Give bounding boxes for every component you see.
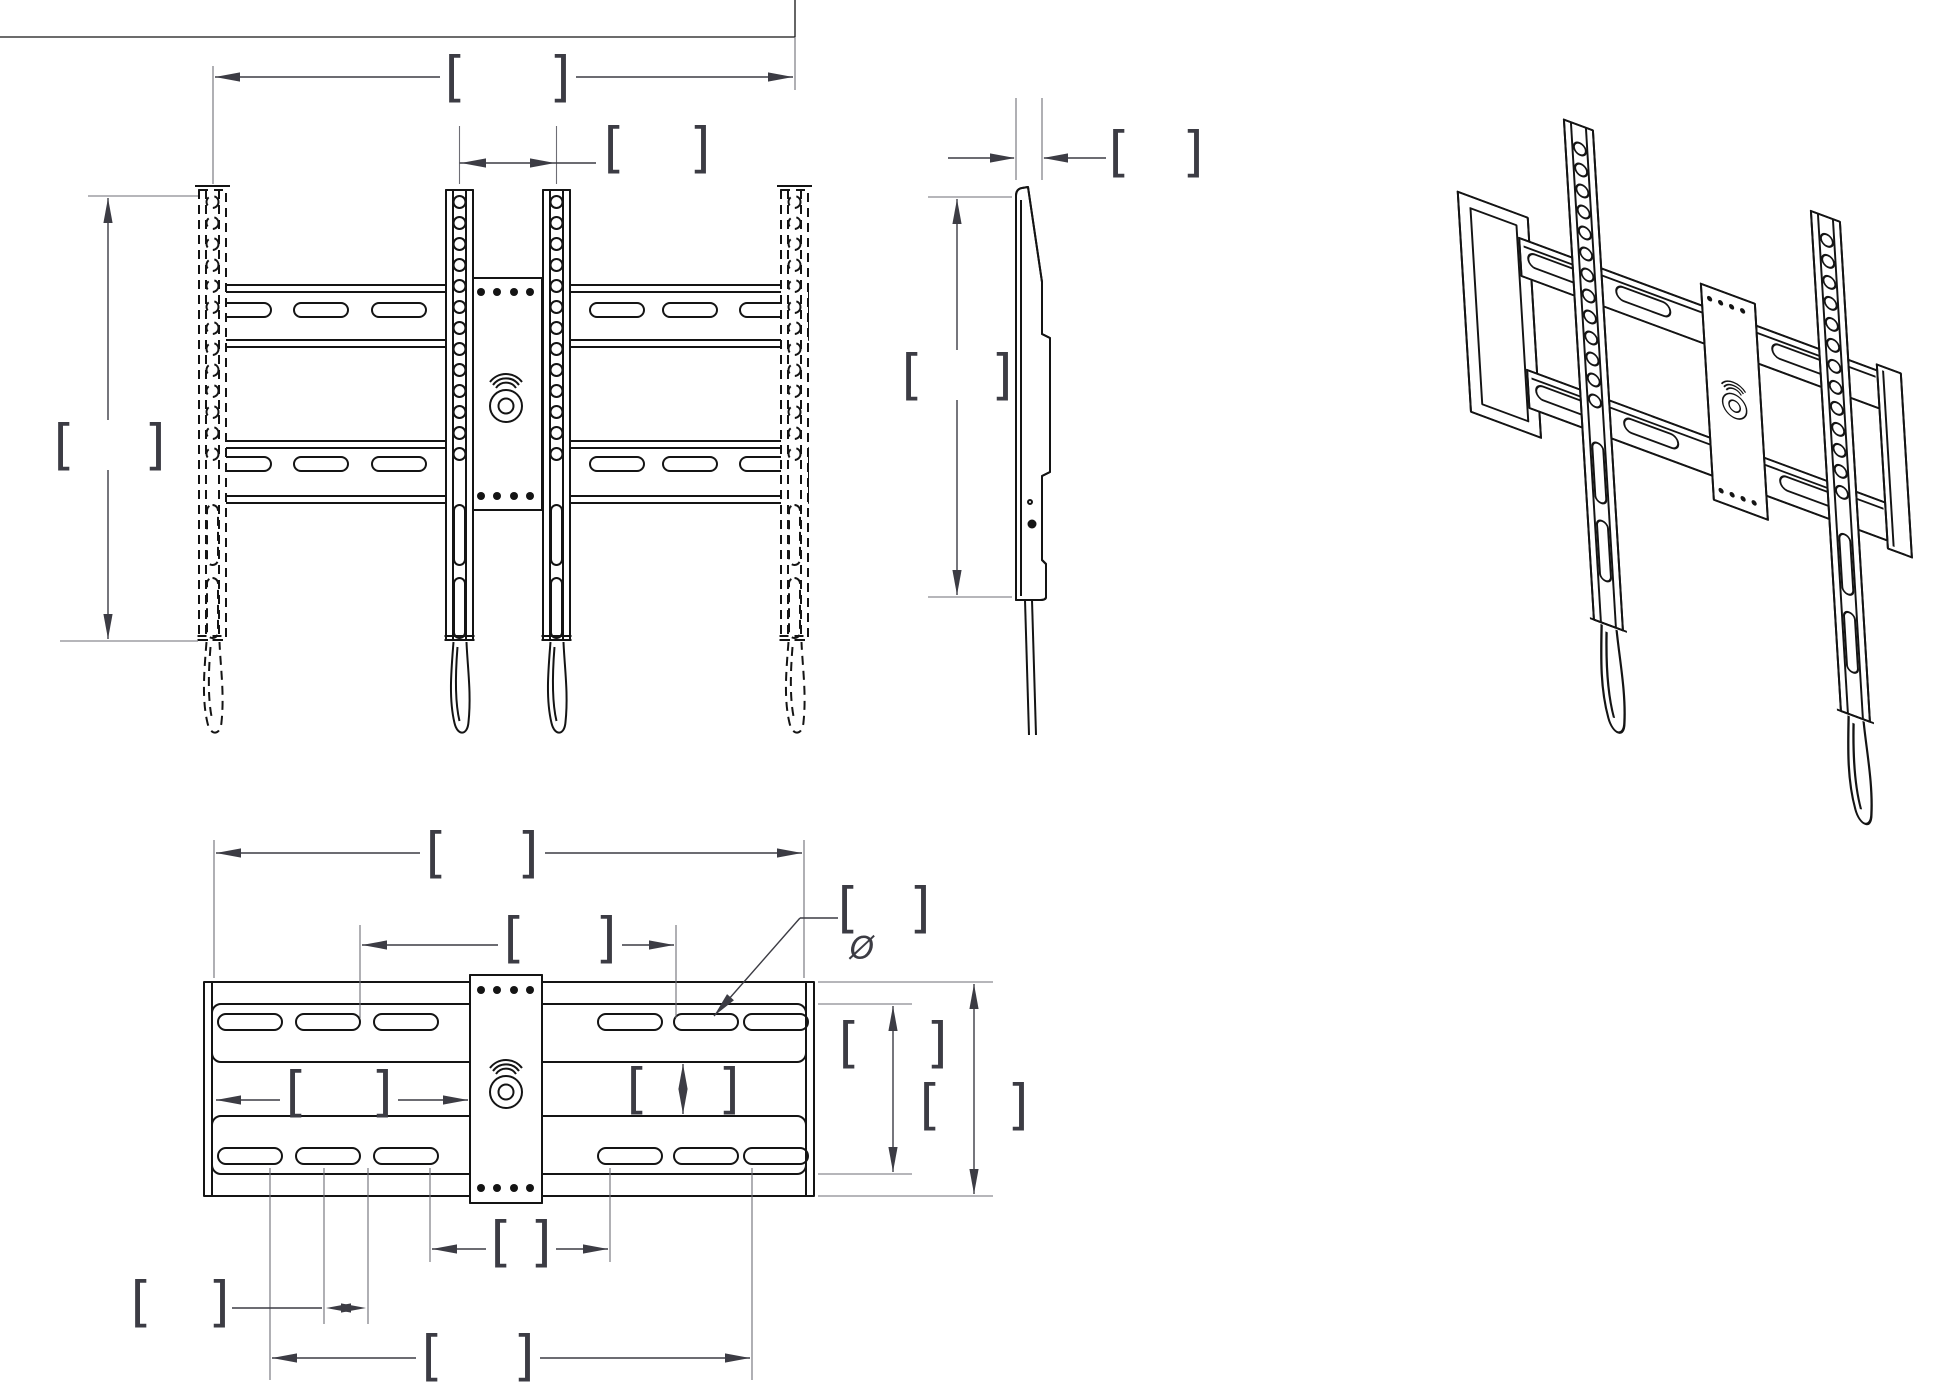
svg-text:]: ]: [371, 1061, 392, 1124]
dim-bottom-mid-slot-spacing: [ ]: [432, 1211, 608, 1274]
front-rail-1-phantom: [195, 186, 230, 733]
svg-text:[: [: [838, 1012, 859, 1075]
front-view: [ ] [ ] [ ]: [53, 37, 812, 733]
sheet-border: [0, 0, 795, 37]
dim-side-height: [ ]: [901, 197, 1012, 597]
cad-canvas: [ ] [ ] [ ]: [0, 0, 1933, 1382]
svg-text:]: ]: [1182, 121, 1203, 184]
svg-text:]: ]: [513, 1325, 534, 1382]
svg-text:[: [: [503, 907, 524, 970]
svg-text:[: [: [603, 117, 624, 180]
side-profile: [1016, 187, 1050, 735]
svg-text:]: ]: [718, 1058, 739, 1121]
svg-text:]: ]: [549, 46, 570, 109]
svg-text:[: [: [626, 1058, 647, 1121]
dim-bottom-slot-pitch: [ ]: [130, 1271, 366, 1334]
dim-front-rail-height: [ ]: [53, 196, 198, 641]
svg-text:[: [: [919, 1074, 940, 1137]
plan-center-plate: [470, 975, 542, 1203]
side-view: [ ] [ ]: [901, 98, 1203, 735]
svg-text:[: [: [901, 344, 922, 407]
dim-bottom-slot-diameter-callout: [ ] Ø: [711, 877, 931, 1020]
svg-text:]: ]: [208, 1271, 229, 1334]
dim-side-thickness: [ ]: [948, 98, 1204, 184]
diameter-symbol: Ø: [848, 930, 876, 966]
svg-text:[: [: [490, 1211, 511, 1274]
dim-front-center-rail-spacing: [ ]: [460, 117, 711, 185]
dim-bottom-lower-span: [ ]: [272, 1325, 750, 1382]
svg-text:]: ]: [530, 1211, 551, 1274]
svg-text:[: [: [285, 1061, 306, 1124]
bottom-plan-view: [ ] [ ] [ ]: [130, 822, 1028, 1382]
svg-text:]: ]: [909, 877, 930, 940]
svg-text:]: ]: [926, 1012, 947, 1075]
svg-text:[: [: [130, 1271, 151, 1334]
front-center-plate: [470, 278, 542, 510]
drawing-sheet: [ ] [ ] [ ]: [0, 0, 1933, 1382]
front-rail-2: [445, 190, 475, 733]
dim-bottom-left-cavity-width: [ ]: [216, 1061, 468, 1124]
isometric-view: [1451, 78, 1929, 848]
svg-text:]: ]: [517, 822, 538, 885]
svg-text:]: ]: [991, 344, 1012, 407]
svg-text:[: [: [53, 414, 74, 477]
svg-text:[: [: [421, 1325, 442, 1382]
front-rail-3: [542, 190, 572, 733]
front-rail-4-phantom: [777, 186, 812, 733]
svg-text:[: [: [1108, 121, 1129, 184]
svg-text:[: [: [425, 822, 446, 885]
svg-text:]: ]: [1007, 1074, 1028, 1137]
svg-text:]: ]: [144, 414, 165, 477]
svg-text:]: ]: [595, 907, 616, 970]
svg-text:[: [: [444, 46, 465, 109]
iso-center-plate: [1701, 284, 1768, 520]
svg-text:]: ]: [689, 117, 710, 180]
dim-bottom-right-cavity-height: [ ]: [626, 1058, 739, 1121]
